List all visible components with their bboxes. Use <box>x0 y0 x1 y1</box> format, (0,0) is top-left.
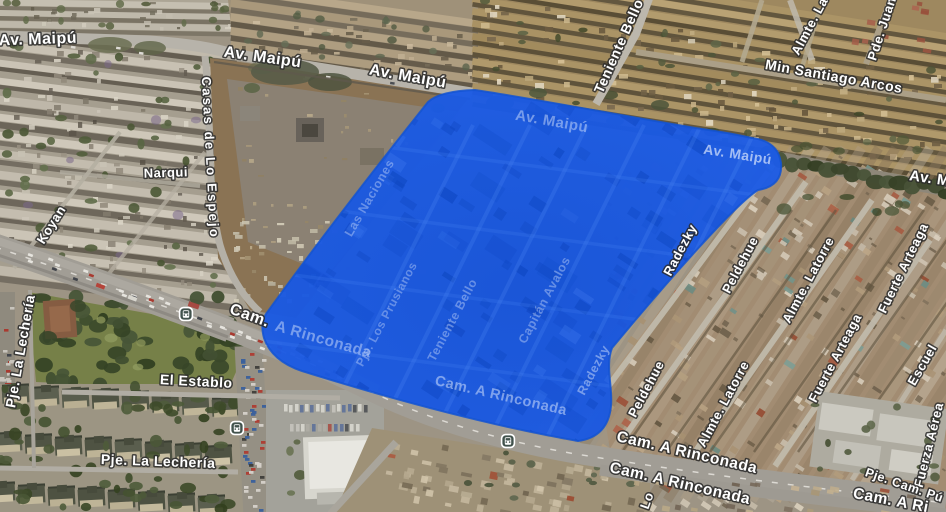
svg-text:Narqui: Narqui <box>144 164 189 181</box>
svg-text:Av. Maipú: Av. Maipú <box>0 30 77 50</box>
